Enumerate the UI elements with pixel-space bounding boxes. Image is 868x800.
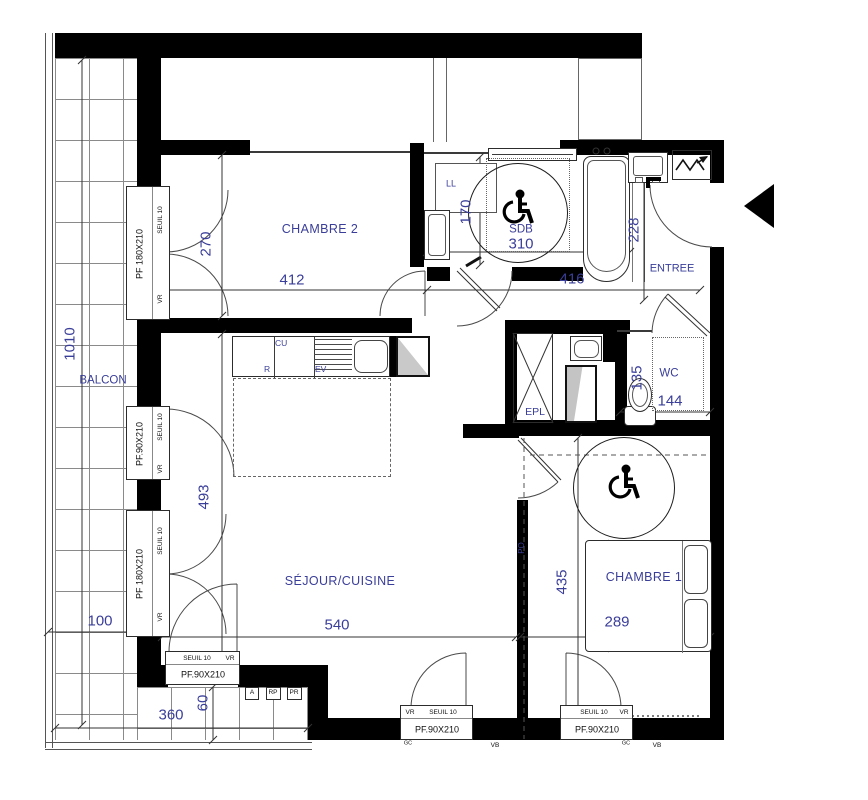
window-pf90-sejour-upper: PF.90X210 SEUIL 10 VR <box>126 406 170 480</box>
dim-310: 310 <box>508 237 533 252</box>
dim-412: 412 <box>279 273 304 288</box>
window-vr-label: VR <box>225 656 234 663</box>
gc-tag-1: GC <box>404 741 412 747</box>
dim-60: 60 <box>196 695 211 712</box>
window-label: PF.90X210 <box>575 726 619 735</box>
utility-box-a-label: A <box>250 690 254 697</box>
window-label: PF.90X210 <box>136 422 145 466</box>
dim-1010: 1010 <box>63 327 78 360</box>
dim-144: 144 <box>657 394 682 409</box>
entrance-arrow-icon <box>744 184 774 228</box>
dim-435: 435 <box>555 569 570 594</box>
washing-machine-label: LL <box>446 180 456 189</box>
floor-plan: LL CU R EV <box>0 0 868 800</box>
window-vr-label: VR <box>158 294 165 303</box>
plan-linework <box>0 0 868 800</box>
window-label: PF 180X210 <box>136 229 145 279</box>
dim-493: 493 <box>197 484 212 509</box>
window-sill-label: SEUIL 10 <box>183 656 211 663</box>
radiator <box>672 150 712 180</box>
utility-box-pr-label: PR <box>289 690 298 697</box>
hand-basin <box>570 336 602 361</box>
dim-360: 360 <box>158 708 183 723</box>
window-sill-label: SEUIL 10 <box>429 710 457 717</box>
bed <box>585 540 712 652</box>
sdb-vanity <box>424 210 450 260</box>
room-label-balcon: BALCON <box>79 375 126 387</box>
door-stop-2 <box>646 177 650 188</box>
kitchen-duct <box>396 336 430 377</box>
kitchen-sink <box>354 340 388 373</box>
wheelchair-icon-2 <box>605 463 643 509</box>
room-label-wc: WC <box>659 368 678 380</box>
room-label-sdb: SDB <box>509 224 533 236</box>
window-sill-label: SEUIL 10 <box>158 206 165 234</box>
room-label-epl: EPL <box>525 407 545 418</box>
bathtub <box>583 156 630 282</box>
window-vr-label: VR <box>158 464 165 473</box>
window-sill-label: SEUIL 10 <box>580 710 608 717</box>
gc-tag-2: GC <box>622 741 630 747</box>
vb-tag-2: VB <box>653 743 662 750</box>
room-label-chambre1: CHAMBRE 1 <box>606 571 683 584</box>
window-pf90-bottom-chambre1: SEUIL 10 VR PF.90X210 <box>560 705 633 740</box>
door-tag-po: PO <box>518 542 526 554</box>
window-label: PF 180X210 <box>136 549 145 599</box>
kitchen-island-dashed <box>233 378 391 477</box>
dim-540: 540 <box>324 618 349 633</box>
vb-tag-1: VB <box>491 743 500 750</box>
window-vr-label: VR <box>619 710 628 717</box>
window-pf180-chambre2: PF 180X210 SEUIL 10 VR <box>126 186 170 320</box>
dim-416: 416 <box>559 272 584 287</box>
dim-228: 228 <box>627 217 642 242</box>
window-vr-label: VR <box>158 612 165 621</box>
tap-1 <box>593 148 599 154</box>
room-label-chambre2: CHAMBRE 2 <box>282 223 359 236</box>
window-sill-label: SEUIL 10 <box>158 527 165 555</box>
nook-duct <box>565 365 597 423</box>
kitchen-duct-stub <box>390 336 396 377</box>
dim-100: 100 <box>87 614 112 629</box>
kitchen-r-label: R <box>264 365 270 374</box>
window-pf180-sejour: PF 180X210 SEUIL 10 VR <box>126 510 170 637</box>
window-label: PF.90X210 <box>181 671 225 680</box>
window-sill-label: SEUIL 10 <box>158 413 165 441</box>
dim-270: 270 <box>199 231 214 256</box>
room-label-entree: ENTREE <box>650 264 695 275</box>
window-pf90-bottom-sejour: VR SEUIL 10 PF.90X210 <box>400 705 473 740</box>
dim-170: 170 <box>459 199 474 224</box>
kitchen-cu-label: CU <box>275 339 287 348</box>
tap-2 <box>604 148 610 154</box>
kitchen-ev-label: EV <box>315 365 326 374</box>
window-vr-label: VR <box>405 710 414 717</box>
window-label: PF.90X210 <box>415 726 459 735</box>
room-label-sejour: SÉJOUR/CUISINE <box>285 575 395 588</box>
utility-box-rp-label: RP <box>268 690 277 697</box>
dim-135: 135 <box>630 365 645 390</box>
window-pf90-sejour-bl: SEUIL 10 VR PF.90X210 <box>165 651 240 685</box>
dim-289: 289 <box>604 615 629 630</box>
